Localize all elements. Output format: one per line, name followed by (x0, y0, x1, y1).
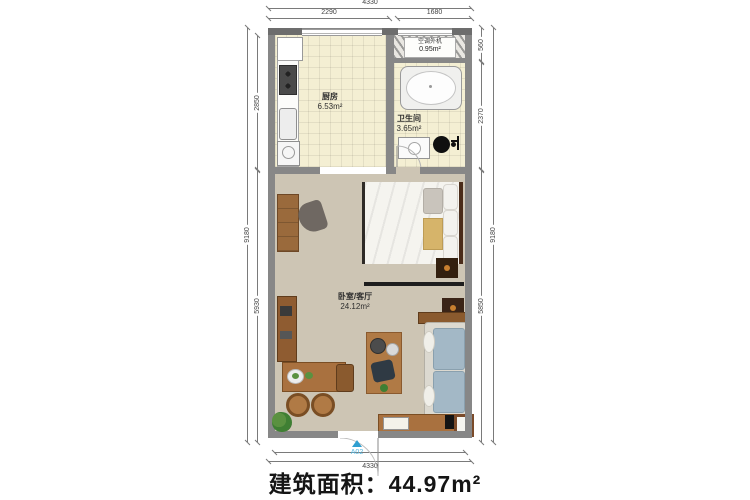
ac-name: 空调外机 (405, 39, 455, 46)
game-board (370, 359, 396, 383)
wall-ac-bath (394, 58, 465, 63)
ac-window (398, 29, 452, 36)
building-area-caption: 建筑面积：44.97m² (0, 465, 750, 499)
table-plant-icon (380, 384, 388, 392)
floor-plan-page: 4330 2290 1680 9180 2850 5930 560 2370 5… (0, 0, 750, 500)
table-plant-icon (305, 372, 313, 379)
washer-drum-icon (282, 146, 295, 159)
stool (311, 393, 335, 417)
dim-top-right: 1680 (397, 18, 472, 19)
side-table-plant-icon (450, 305, 456, 311)
sofa (424, 322, 468, 418)
ac-area: 0.95m² (405, 46, 455, 54)
tv-cabinet-box (383, 417, 409, 430)
tray-icon (386, 343, 399, 356)
nightstand (436, 258, 458, 278)
coffee-table (366, 332, 402, 394)
stool (286, 393, 310, 417)
sofa-cushion (433, 371, 465, 413)
wall-kitchen-bath-divider (386, 28, 394, 174)
dining-chair (336, 364, 354, 392)
dim-right-middle: 2370 (481, 62, 482, 170)
washing-machine (277, 141, 300, 166)
wall-left (268, 28, 275, 438)
food-icon (292, 373, 299, 379)
wardrobe (277, 194, 299, 252)
living-label: 卧室/客厅 24.12m² (320, 292, 390, 312)
bathroom-door-opening (396, 167, 420, 174)
dim-right-upper: 560 (481, 28, 482, 62)
desk-console (277, 296, 297, 362)
kitchen-sink (279, 108, 297, 140)
sofa-pillow (423, 331, 435, 353)
kitchen-label: 厨房 6.53m² (300, 92, 360, 112)
dim-left-lower: 5930 (257, 170, 258, 442)
knit-pillow (423, 188, 443, 214)
sofa-cushion (433, 328, 465, 370)
tray-icon (370, 338, 386, 354)
desk-item (280, 331, 292, 339)
dim-right-outer: 9180 (493, 28, 494, 442)
bed (362, 182, 459, 264)
wall-pier-middle (382, 28, 398, 35)
tv-bar (364, 282, 464, 286)
floor-plant (272, 412, 292, 432)
dim-left-outer: 9180 (247, 28, 248, 442)
fridge (277, 37, 303, 61)
entry-door-opening (338, 431, 378, 438)
dim-left-upper: 2850 (257, 36, 258, 170)
dim-top-left: 2290 (268, 18, 390, 19)
wall-pier-right (452, 28, 472, 35)
pillow (443, 210, 458, 236)
shower-icon (451, 136, 463, 154)
gold-blanket (423, 218, 443, 250)
entry-arrow-icon (352, 440, 362, 447)
tv-cabinet (378, 414, 464, 432)
toilet (433, 136, 450, 153)
pillow (443, 184, 458, 210)
entry-door-label: A02 (345, 449, 369, 457)
wall-kitchen-living-stub (268, 167, 320, 174)
wall-pier-left (268, 28, 302, 35)
sofa-pillow (423, 385, 435, 407)
bathtub (400, 66, 462, 110)
plate (287, 369, 304, 384)
nightstand-plant-icon (444, 265, 450, 271)
bathtub-drain-icon (429, 85, 432, 88)
wall-right (465, 28, 472, 438)
cooktop (279, 65, 297, 95)
shower-head-icon (451, 142, 456, 147)
ac-label-box: 空调外机 0.95m² (404, 37, 456, 58)
kitchen-window (302, 29, 382, 36)
desk-item (280, 306, 292, 316)
dim-right-lower: 5850 (481, 170, 482, 442)
bathtub-basin (406, 71, 456, 105)
shower-pipe-icon (457, 136, 459, 150)
